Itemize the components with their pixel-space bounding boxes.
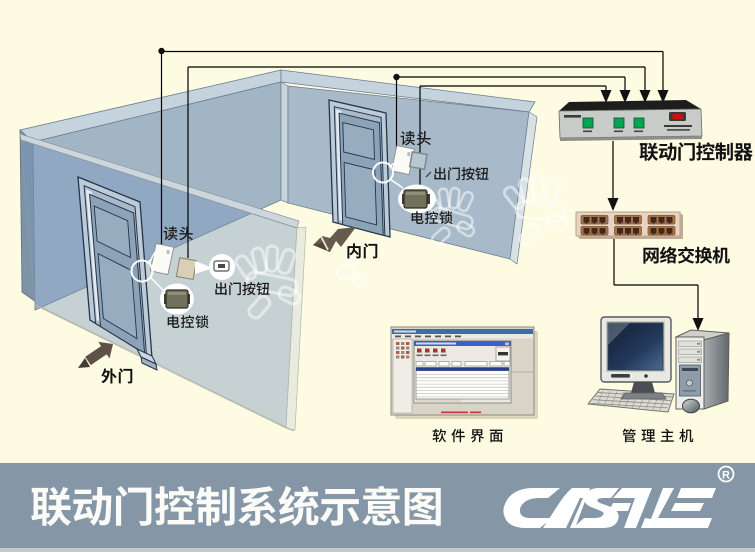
svg-text:R: R <box>722 470 730 482</box>
